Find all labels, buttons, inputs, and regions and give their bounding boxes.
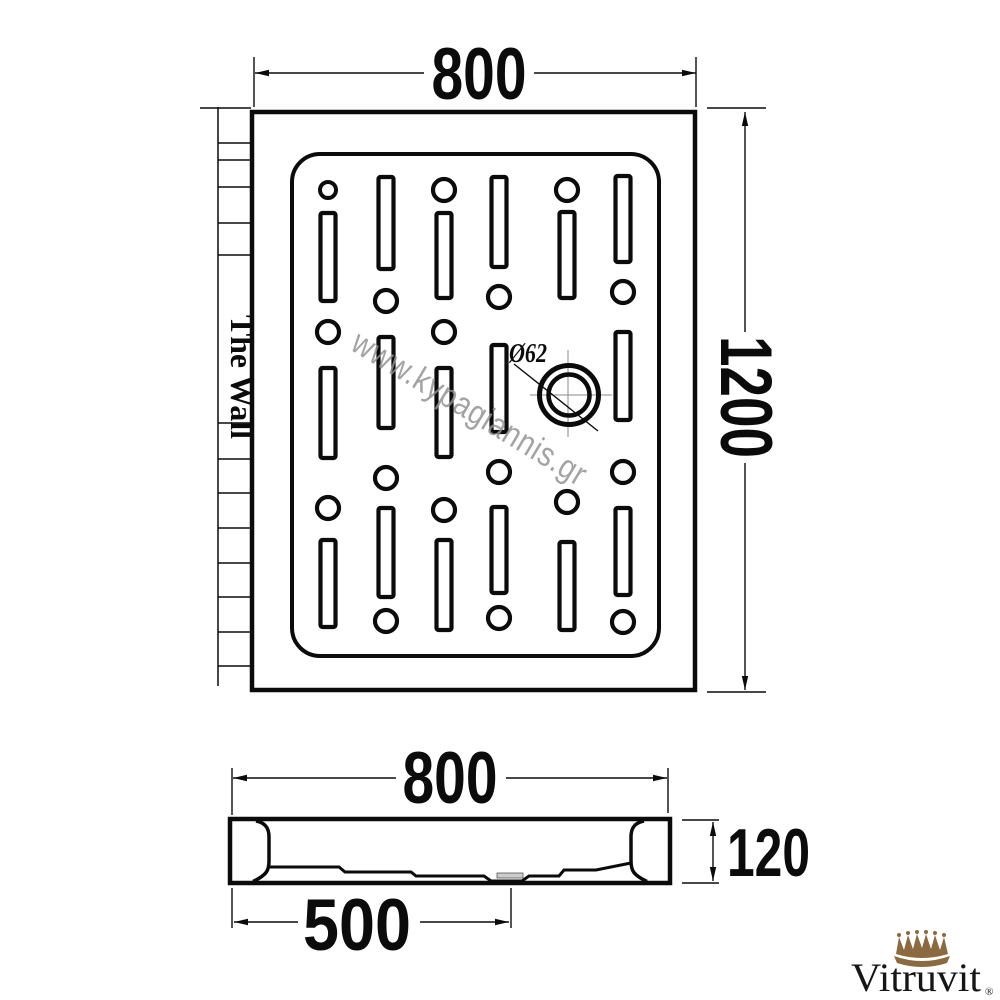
plan-height-value: 1200 <box>705 336 786 458</box>
profile-right-endcap <box>631 821 647 882</box>
side-drain-offset-dimension: 500 <box>232 885 511 966</box>
side-width-dimension: 800 <box>232 738 668 819</box>
wall-label: The Wall <box>224 315 260 439</box>
plan-width-dimension: 800 <box>254 34 696 115</box>
brand-name: Vitruvit <box>851 955 981 1000</box>
profile-left-endcap <box>253 821 269 882</box>
profile-outline <box>230 819 670 883</box>
technical-drawing-page: The Wall <box>0 0 1000 1000</box>
profile-drain-plate <box>497 873 523 878</box>
registered-mark: ® <box>985 986 993 998</box>
plan-view: Ø62 800 1200 <box>252 34 786 692</box>
side-view: 800 120 500 <box>230 738 810 966</box>
side-width-value: 800 <box>403 738 498 819</box>
side-drain-offset-value: 500 <box>303 885 411 966</box>
side-depth-dimension: 120 <box>682 815 810 891</box>
side-depth-value: 120 <box>727 815 810 891</box>
brand-logo: Vitruvit ® <box>851 930 993 1000</box>
shower-tray-drawing: The Wall <box>0 0 1000 1000</box>
profile-floor-line <box>269 863 631 881</box>
plan-height-dimension: 1200 <box>705 108 786 692</box>
drain-diameter-label: Ø62 <box>508 338 547 368</box>
plan-width-value: 800 <box>432 34 527 115</box>
